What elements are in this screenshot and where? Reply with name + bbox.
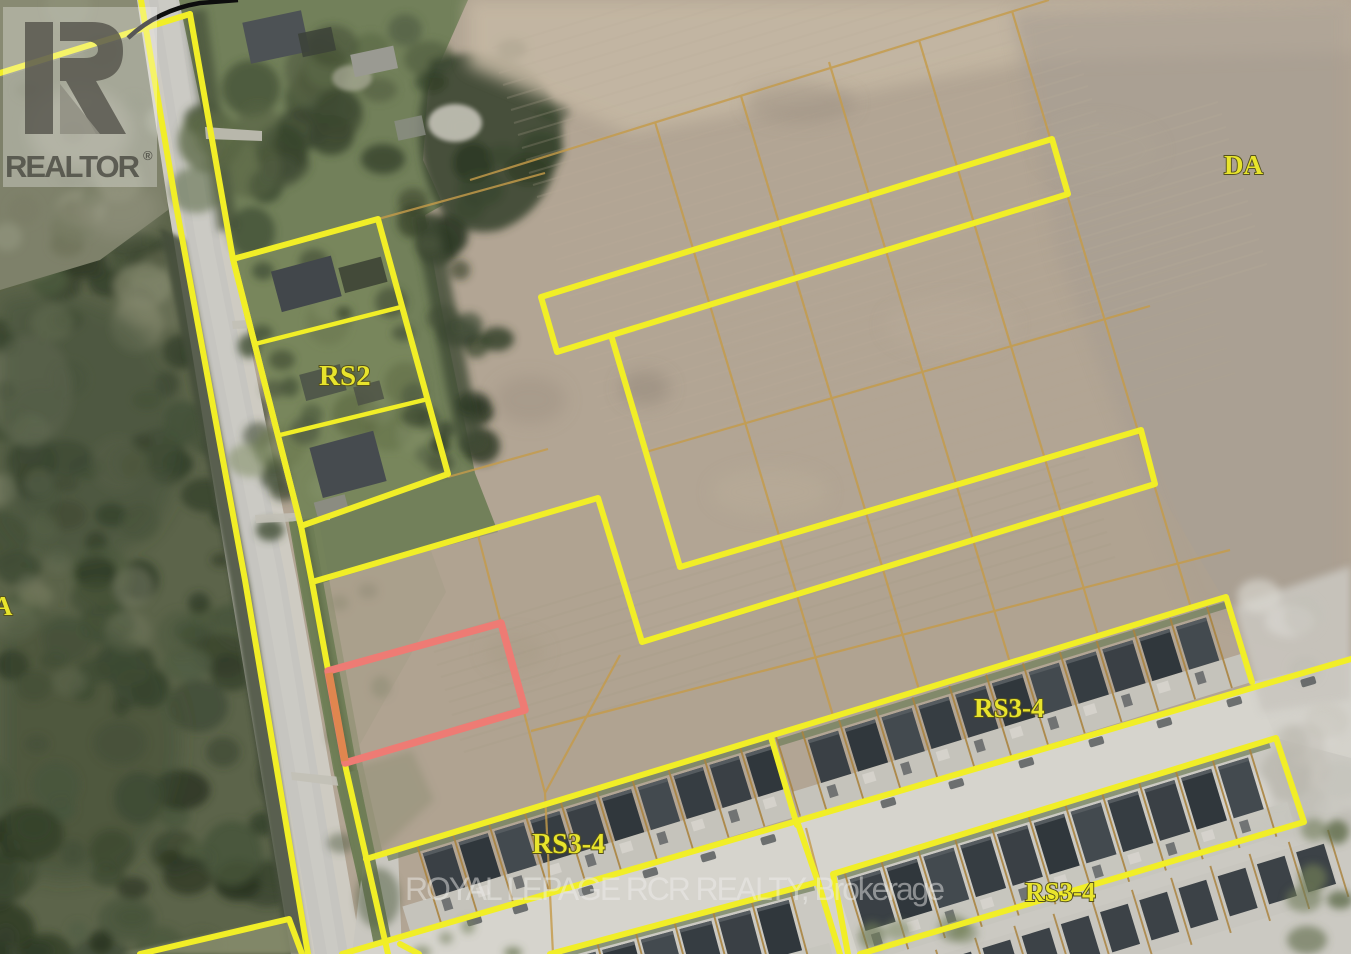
svg-text:RS3-4: RS3-4	[532, 829, 605, 860]
svg-text:RS3-4: RS3-4	[974, 693, 1045, 723]
svg-text:REALTOR: REALTOR	[5, 149, 141, 184]
svg-text:®: ®	[143, 148, 153, 163]
svg-text:ROYAL LEPAGE RCR REALTY, Broke: ROYAL LEPAGE RCR REALTY, Brokerage	[405, 871, 945, 907]
svg-text:RS3-4: RS3-4	[1025, 877, 1096, 907]
svg-text:DA: DA	[1224, 150, 1263, 180]
svg-text:RS2: RS2	[319, 360, 371, 392]
svg-text:A: A	[0, 591, 13, 621]
